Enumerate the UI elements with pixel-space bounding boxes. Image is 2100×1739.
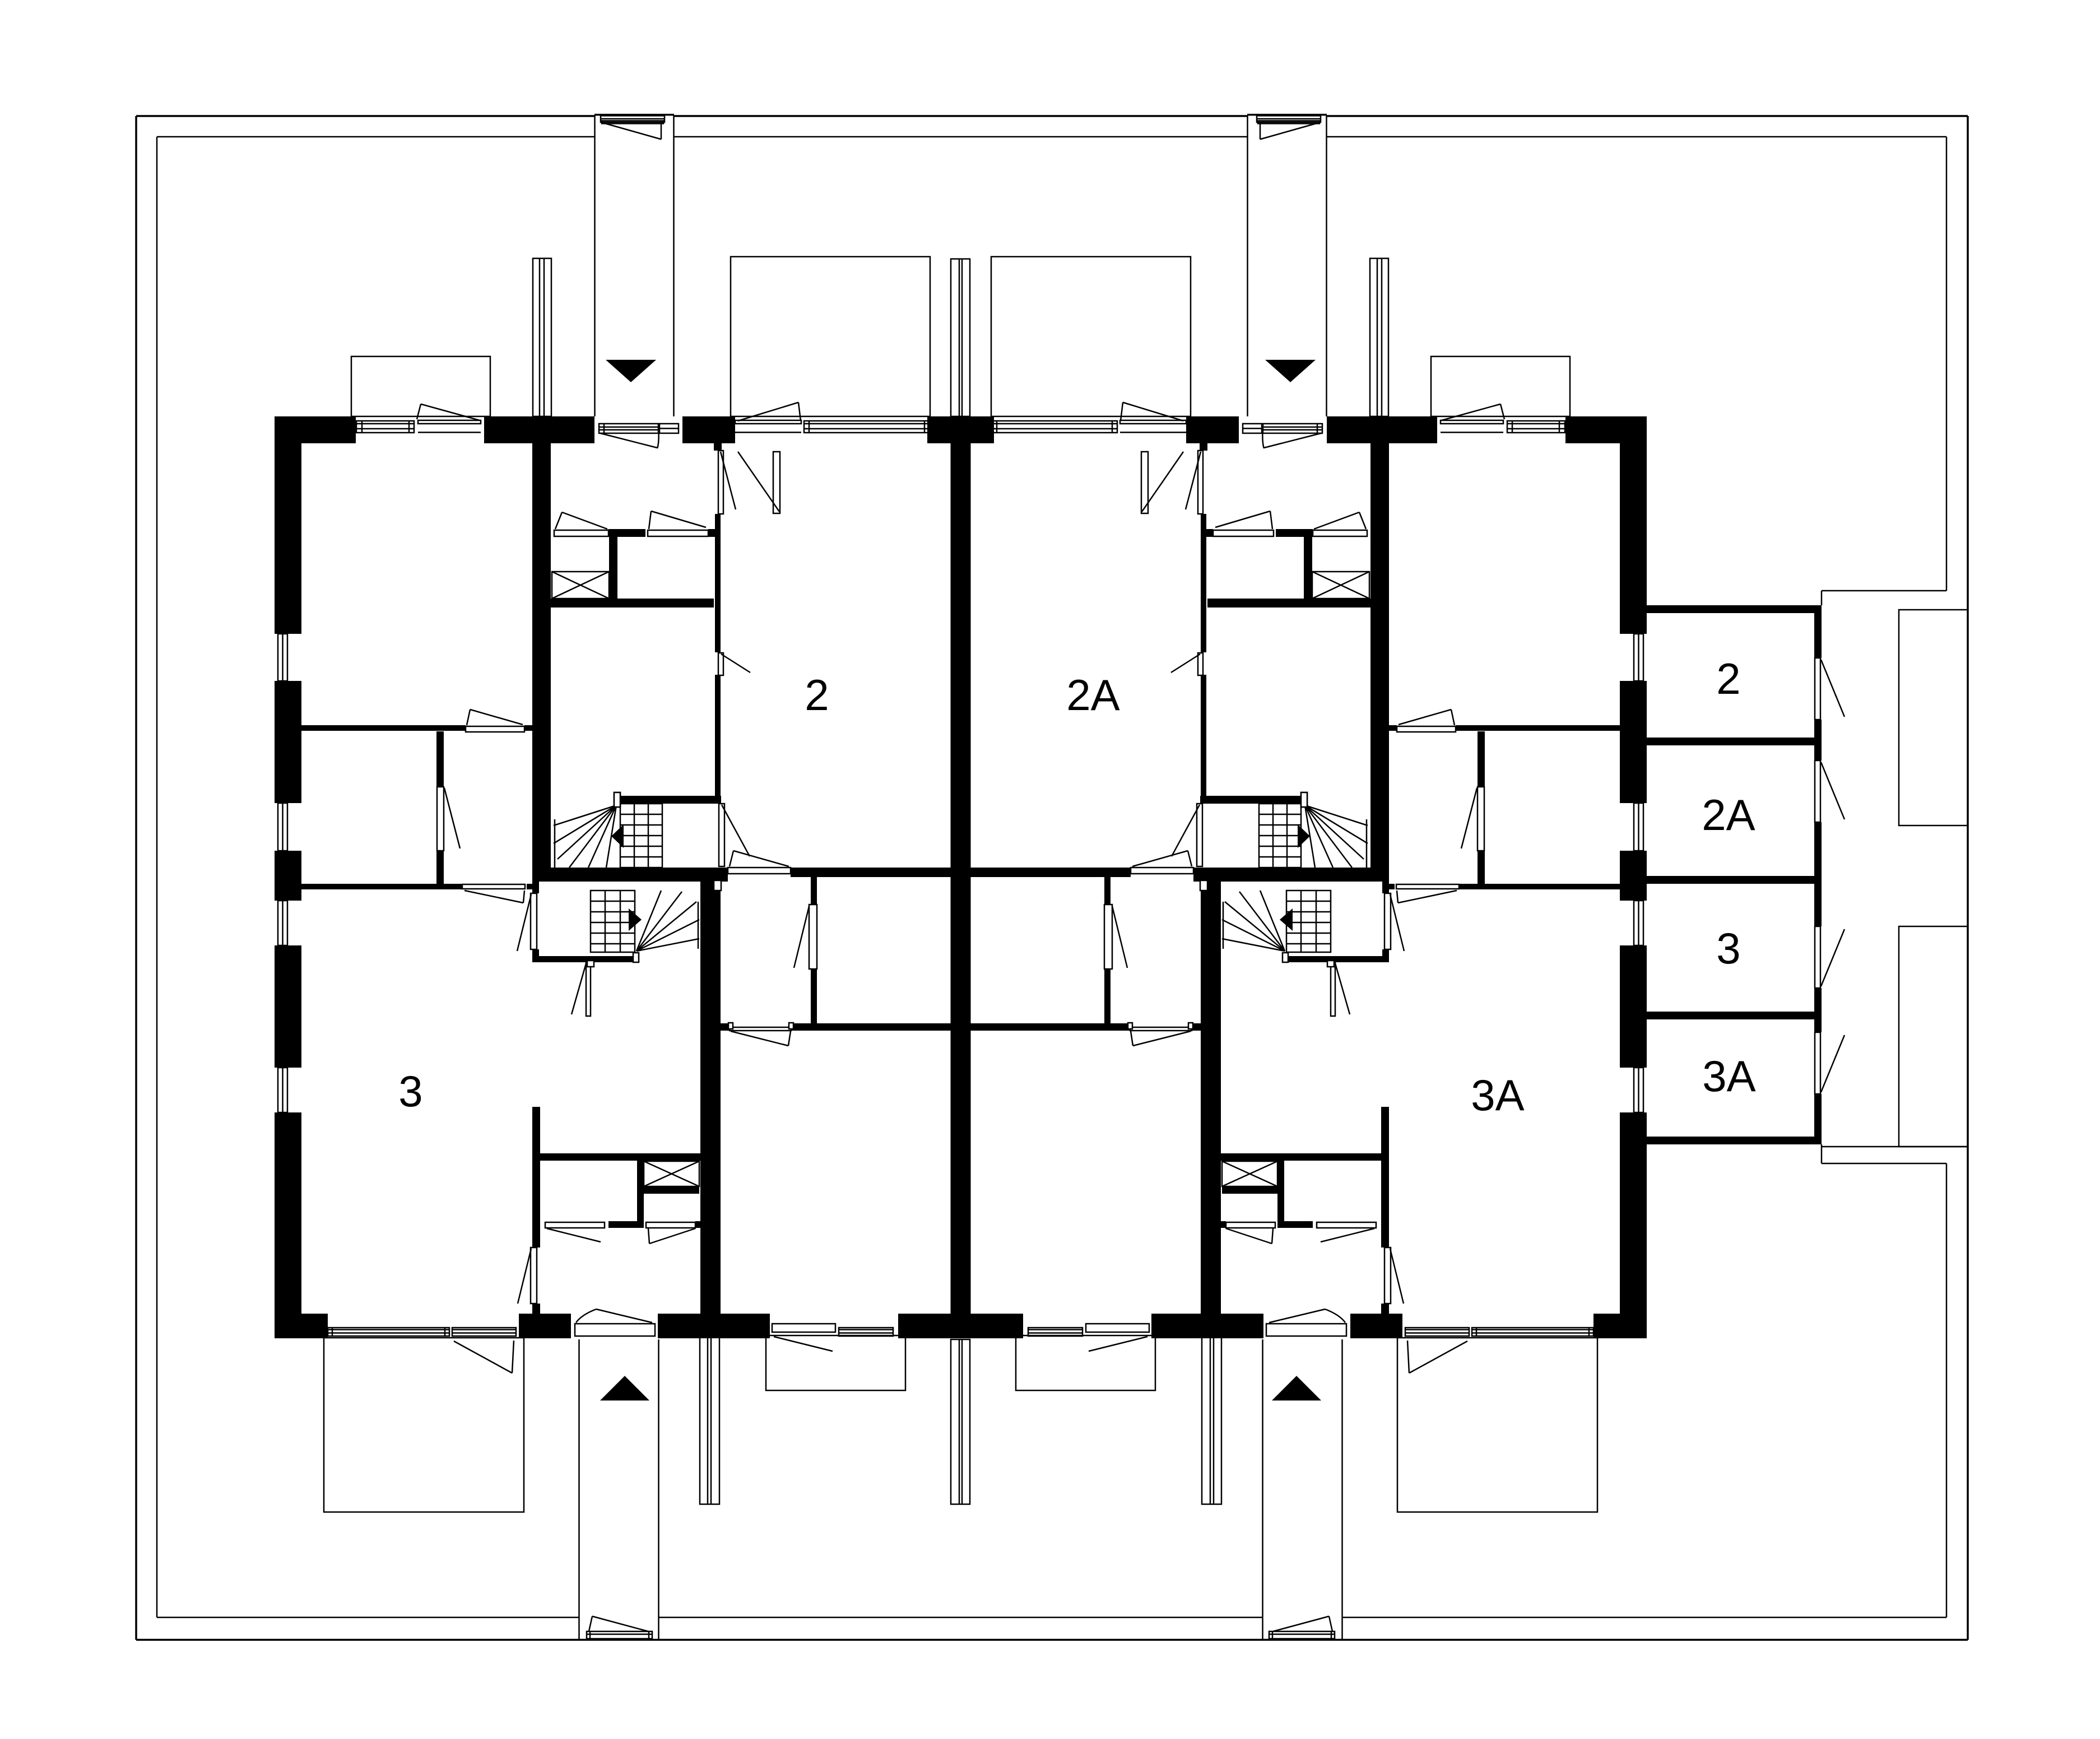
svg-text:2: 2 (1716, 654, 1740, 703)
svg-text:2A: 2A (1702, 790, 1755, 840)
svg-text:3: 3 (1716, 924, 1740, 973)
svg-text:3: 3 (398, 1066, 422, 1116)
svg-text:3A: 3A (1702, 1051, 1755, 1101)
svg-text:2: 2 (805, 670, 829, 720)
svg-text:3A: 3A (1471, 1070, 1524, 1120)
svg-text:2A: 2A (1066, 670, 1119, 720)
